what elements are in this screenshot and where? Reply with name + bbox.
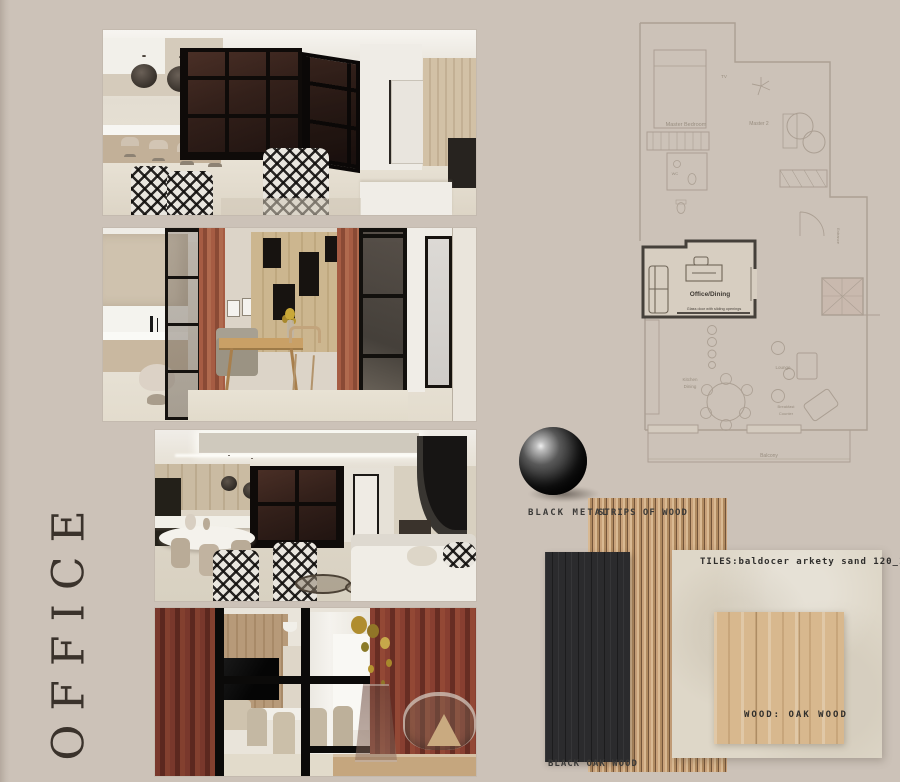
partition-bar (215, 676, 373, 684)
sofa (216, 328, 258, 376)
label-wc: WC (672, 171, 679, 176)
office-mood-board: OFFICE (0, 0, 900, 782)
strips-of-wood-label: STRIPS OF WOOD (598, 508, 688, 518)
cushion (407, 546, 437, 566)
dining-chair (171, 538, 190, 568)
dining-chair (273, 712, 295, 754)
dining-chair (247, 708, 267, 746)
label-breakfast-1: Breakfast (778, 404, 796, 409)
dried-flowers (351, 616, 367, 634)
dining-chair (333, 706, 353, 748)
floor-plan: Master Bedroom Master 2 TV WC Kitchen Di… (628, 14, 880, 466)
shelf-niche (299, 252, 319, 296)
shelf-niche (263, 238, 281, 268)
cove-light (175, 454, 455, 457)
label-master-2: Master 2 (749, 121, 769, 127)
rug (221, 198, 361, 215)
patterned-armchair (213, 550, 259, 601)
render-photo-kitchen-dining (103, 30, 476, 215)
label-breakfast-2: Counter (779, 411, 794, 416)
partition-mullion (215, 608, 224, 776)
page-title-text: OFFICE (44, 496, 95, 760)
bar-stool (121, 137, 139, 146)
label-entrance: Entrance (836, 228, 841, 245)
label-master-bedroom: Master Bedroom (666, 122, 707, 128)
oak-wood-swatch (714, 612, 844, 744)
flowers (285, 308, 295, 320)
office-room-note: Glass door with sliding openings (687, 307, 742, 311)
curtain (155, 608, 215, 776)
render-photo-tv-lounge (155, 608, 476, 776)
label-kitchen-1: Kitchen (682, 377, 698, 382)
wood-side-table (333, 754, 476, 776)
desk-chair (289, 326, 321, 343)
page-left-edge (0, 0, 10, 782)
tiles-label: TILES:baldocer arkety sand 120_120 (700, 557, 900, 567)
picture-frame (227, 300, 240, 317)
ceiling-recess (199, 433, 419, 453)
black-metal-sphere-swatch (519, 427, 587, 495)
black-oak-swatch (545, 552, 630, 762)
pendant-light (221, 476, 237, 491)
label-kitchen-2: Dining (684, 384, 697, 389)
dark-console (448, 138, 476, 188)
render-photo-office-desk (103, 228, 476, 421)
black-oak-wood-label: BLACK OAK WOOD (548, 759, 638, 769)
label-balcony: Balcony (760, 453, 778, 459)
white-wall (407, 228, 425, 392)
table-vase (185, 514, 196, 530)
hallway-door (389, 80, 425, 164)
frosted-door (425, 236, 452, 388)
hallway (452, 228, 476, 421)
label-office-dining: Office/Dining (690, 291, 730, 298)
floor-plan-walls (640, 23, 880, 462)
pendant-light (283, 622, 297, 632)
patterned-armchair (167, 171, 213, 215)
white-ottoman (360, 182, 452, 215)
patterned-armchair (131, 166, 171, 215)
glass-office-cube-front (180, 48, 302, 160)
floor-plan-office-room: Office/Dining Glass door with sliding op… (643, 241, 755, 317)
glass-office-cube (250, 466, 344, 548)
pendant-light (131, 64, 157, 88)
floor (188, 390, 408, 421)
label-lounge: Lounge (775, 365, 791, 370)
render-photo-living-room (155, 430, 476, 601)
hall-door (353, 474, 379, 538)
oak-wood-label: WOOD: OAK WOOD (744, 710, 848, 720)
label-tv: TV (721, 74, 727, 79)
coffee-table (295, 574, 351, 594)
patterned-cushion (443, 542, 476, 568)
faucet (150, 316, 153, 333)
page-title: OFFICE (12, 488, 127, 768)
bar-stool (149, 140, 168, 149)
